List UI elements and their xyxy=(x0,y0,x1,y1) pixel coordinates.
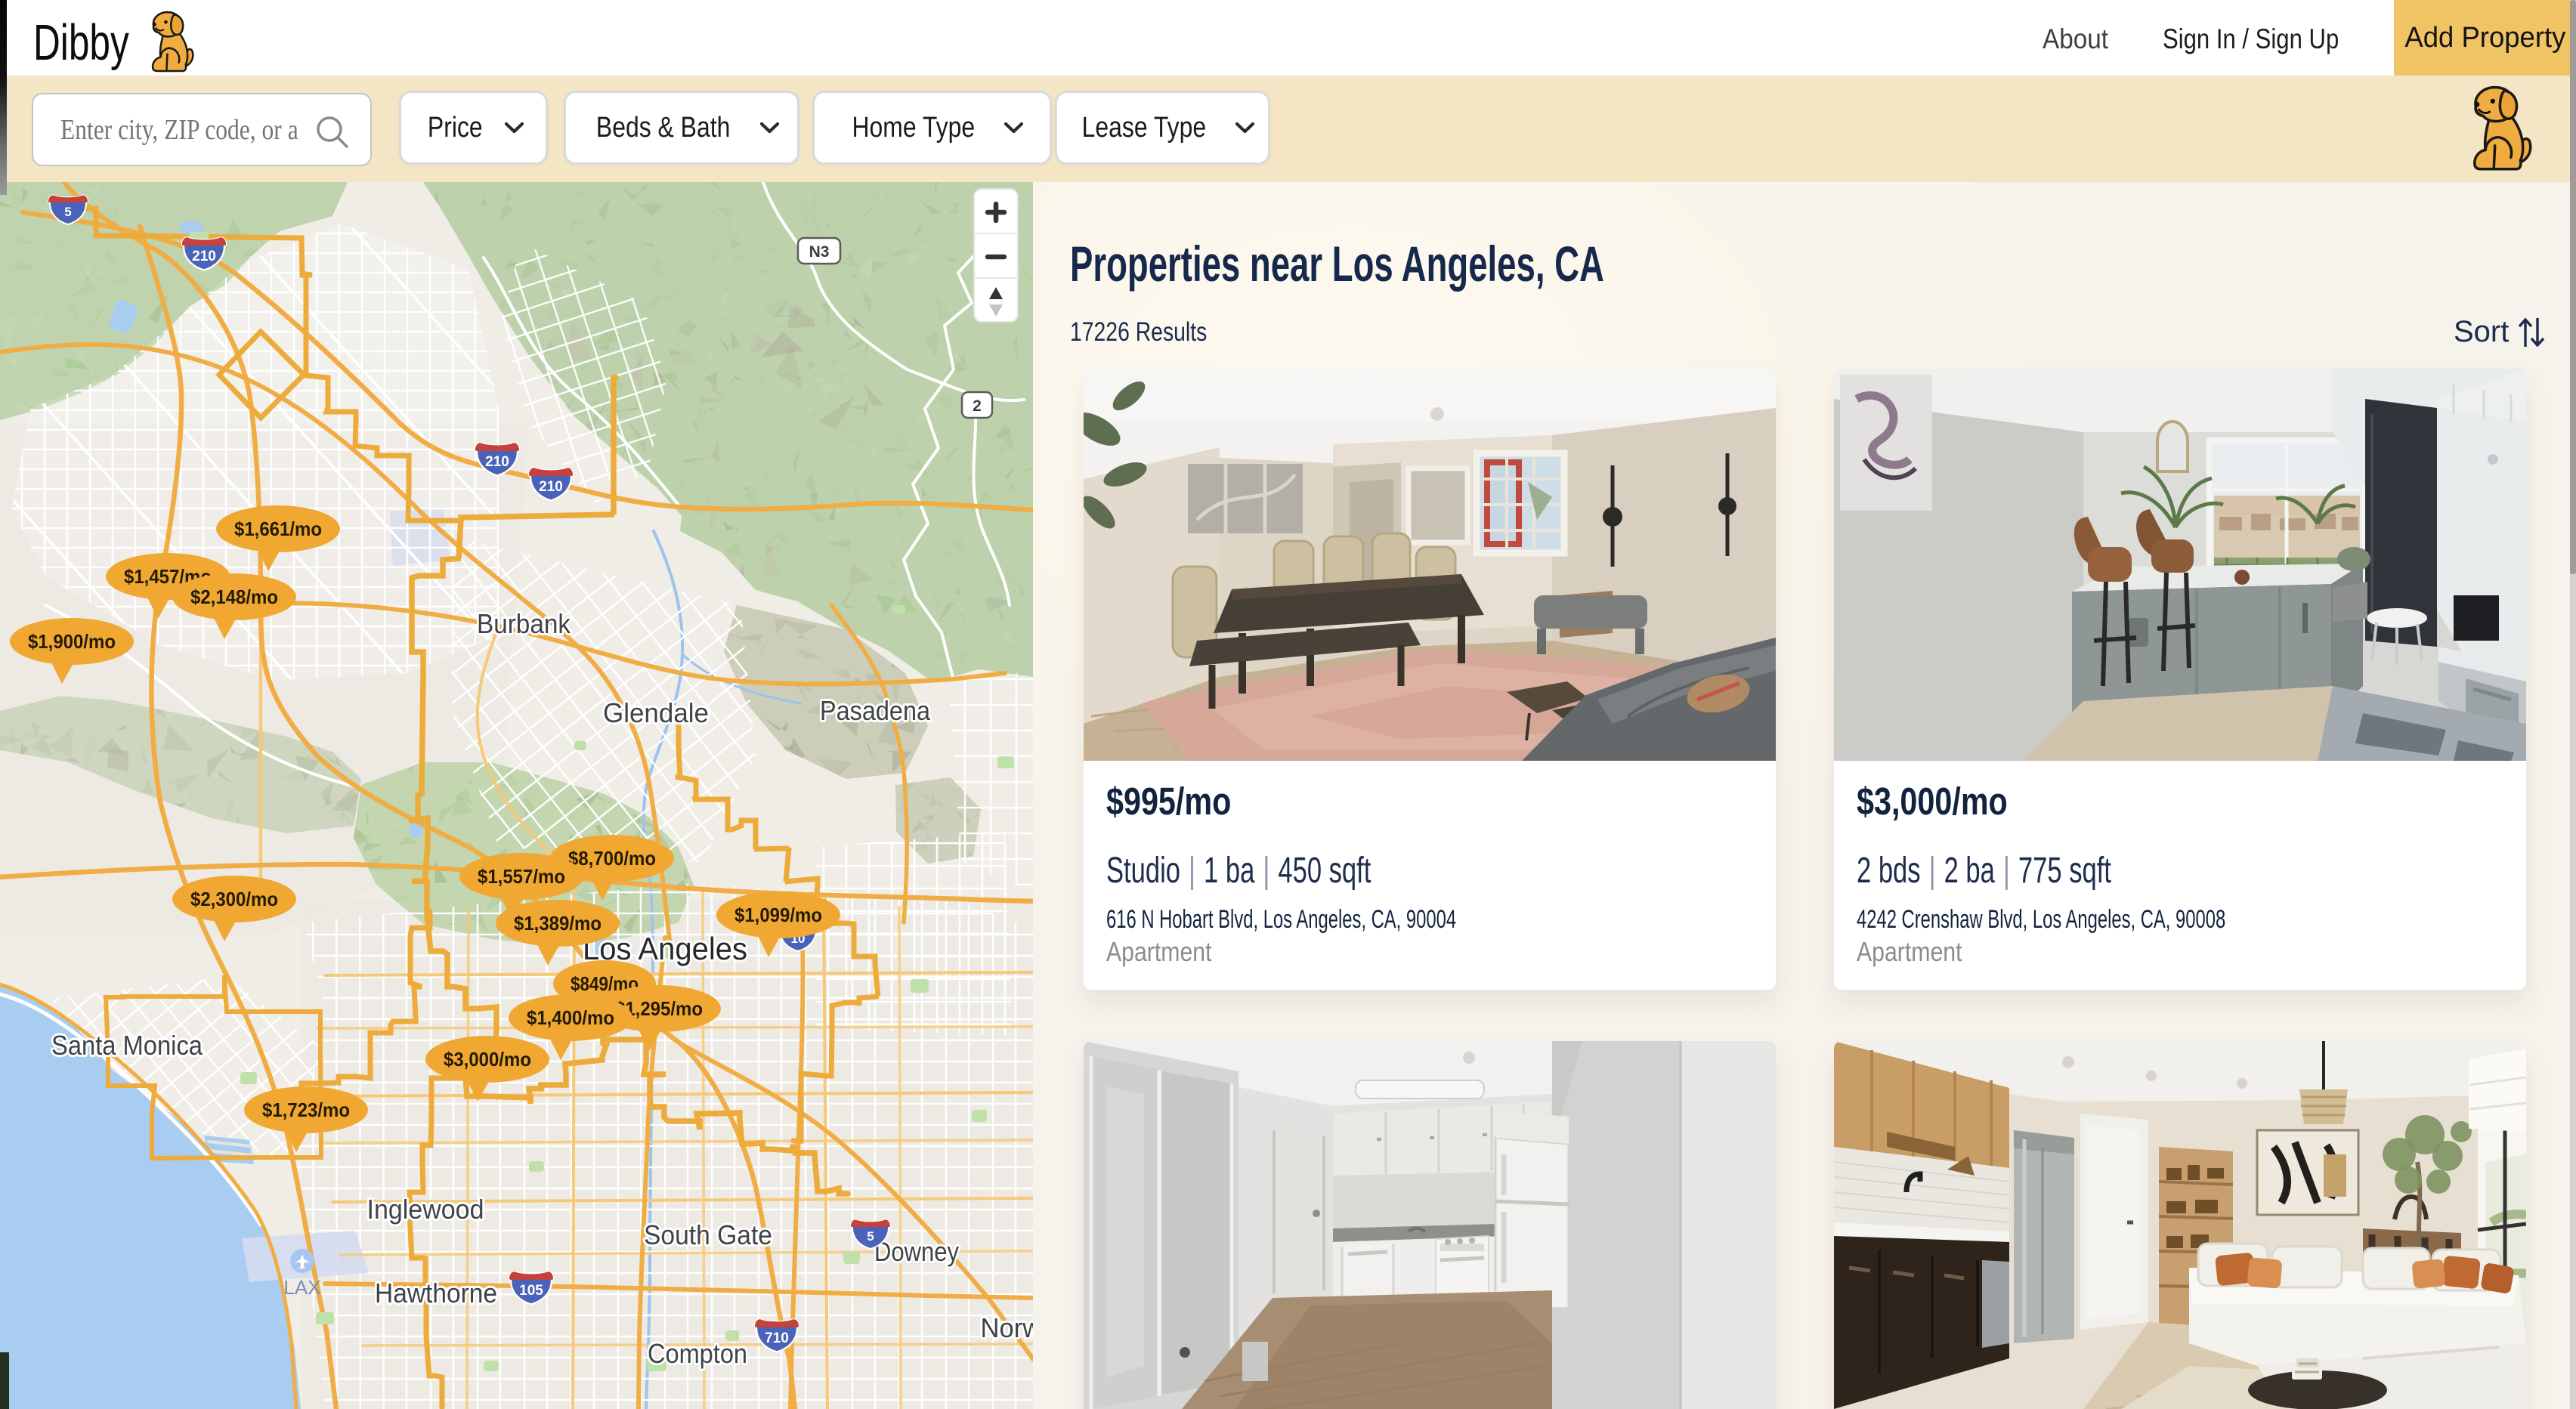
svg-text:210: 210 xyxy=(192,249,216,264)
svg-text:5: 5 xyxy=(64,205,71,219)
svg-text:5: 5 xyxy=(867,1229,874,1244)
svg-text:LAX: LAX xyxy=(283,1276,320,1299)
svg-text:Santa Monica: Santa Monica xyxy=(51,1030,203,1061)
svg-text:$3,000/mo: $3,000/mo xyxy=(444,1048,531,1071)
svg-text:$2,300/mo: $2,300/mo xyxy=(190,888,278,910)
svg-text:$1,723/mo: $1,723/mo xyxy=(262,1098,350,1121)
svg-text:210: 210 xyxy=(485,454,509,470)
svg-text:Compton: Compton xyxy=(648,1338,747,1369)
svg-text:Glendale: Glendale xyxy=(603,697,709,728)
svg-text:N3: N3 xyxy=(809,243,830,261)
svg-text:Hawthorne: Hawthorne xyxy=(375,1278,497,1309)
svg-text:$1,661/mo: $1,661/mo xyxy=(234,518,322,540)
svg-text:Burbank: Burbank xyxy=(477,608,571,639)
svg-text:710: 710 xyxy=(765,1330,789,1346)
svg-text:$1,900/mo: $1,900/mo xyxy=(28,630,116,653)
svg-text:Pasadena: Pasadena xyxy=(820,695,931,726)
svg-text:$1,557/mo: $1,557/mo xyxy=(478,865,565,888)
svg-text:2: 2 xyxy=(973,397,982,415)
svg-text:$1,389/mo: $1,389/mo xyxy=(514,912,601,935)
svg-text:$8,700/mo: $8,700/mo xyxy=(568,847,656,870)
svg-text:Norwalk: Norwalk xyxy=(981,1312,1034,1343)
svg-text:South Gate: South Gate xyxy=(644,1219,772,1250)
svg-text:$1,400/mo: $1,400/mo xyxy=(527,1006,614,1029)
svg-text:$1,099/mo: $1,099/mo xyxy=(734,904,822,926)
svg-text:105: 105 xyxy=(519,1283,543,1299)
svg-text:$2,148/mo: $2,148/mo xyxy=(190,586,278,608)
svg-text:Inglewood: Inglewood xyxy=(367,1194,484,1225)
svg-text:Downey: Downey xyxy=(874,1236,959,1267)
svg-text:210: 210 xyxy=(539,479,563,495)
